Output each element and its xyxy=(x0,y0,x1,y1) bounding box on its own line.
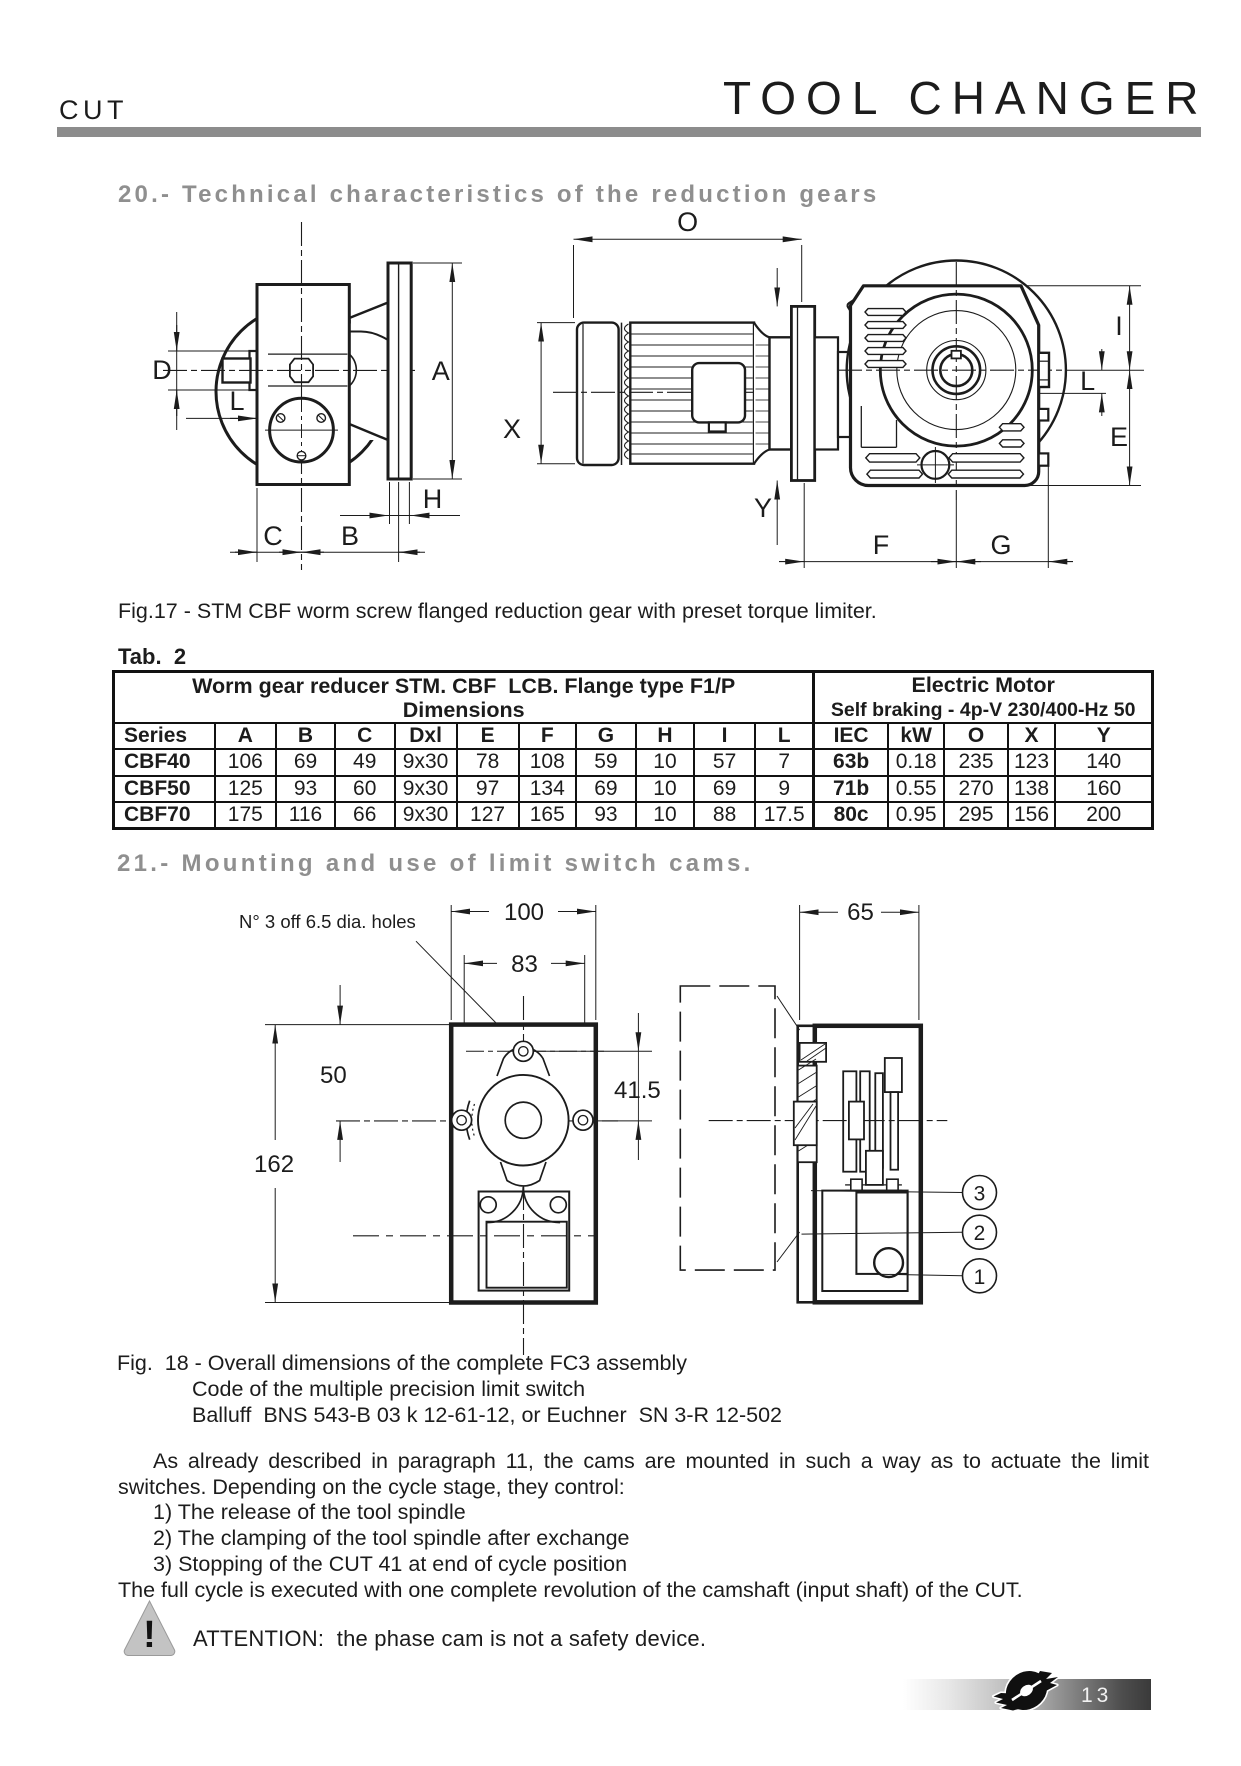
svg-text:F: F xyxy=(873,530,890,560)
svg-text:!: ! xyxy=(143,1614,156,1656)
svg-text:3: 3 xyxy=(974,1183,986,1206)
svg-text:L: L xyxy=(229,386,244,416)
svg-text:L: L xyxy=(1080,366,1095,396)
svg-text:E: E xyxy=(1110,422,1128,452)
svg-text:Y: Y xyxy=(754,493,772,523)
svg-text:1: 1 xyxy=(974,1266,986,1289)
svg-text:A: A xyxy=(432,356,450,386)
svg-text:D: D xyxy=(152,355,172,385)
svg-text:O: O xyxy=(677,207,698,237)
svg-text:H: H xyxy=(423,484,443,514)
svg-text:2: 2 xyxy=(974,1222,986,1245)
svg-text:I: I xyxy=(1115,311,1123,341)
svg-text:X: X xyxy=(503,414,521,444)
svg-text:G: G xyxy=(990,530,1011,560)
svg-text:B: B xyxy=(341,521,359,551)
svg-text:C: C xyxy=(263,521,283,551)
